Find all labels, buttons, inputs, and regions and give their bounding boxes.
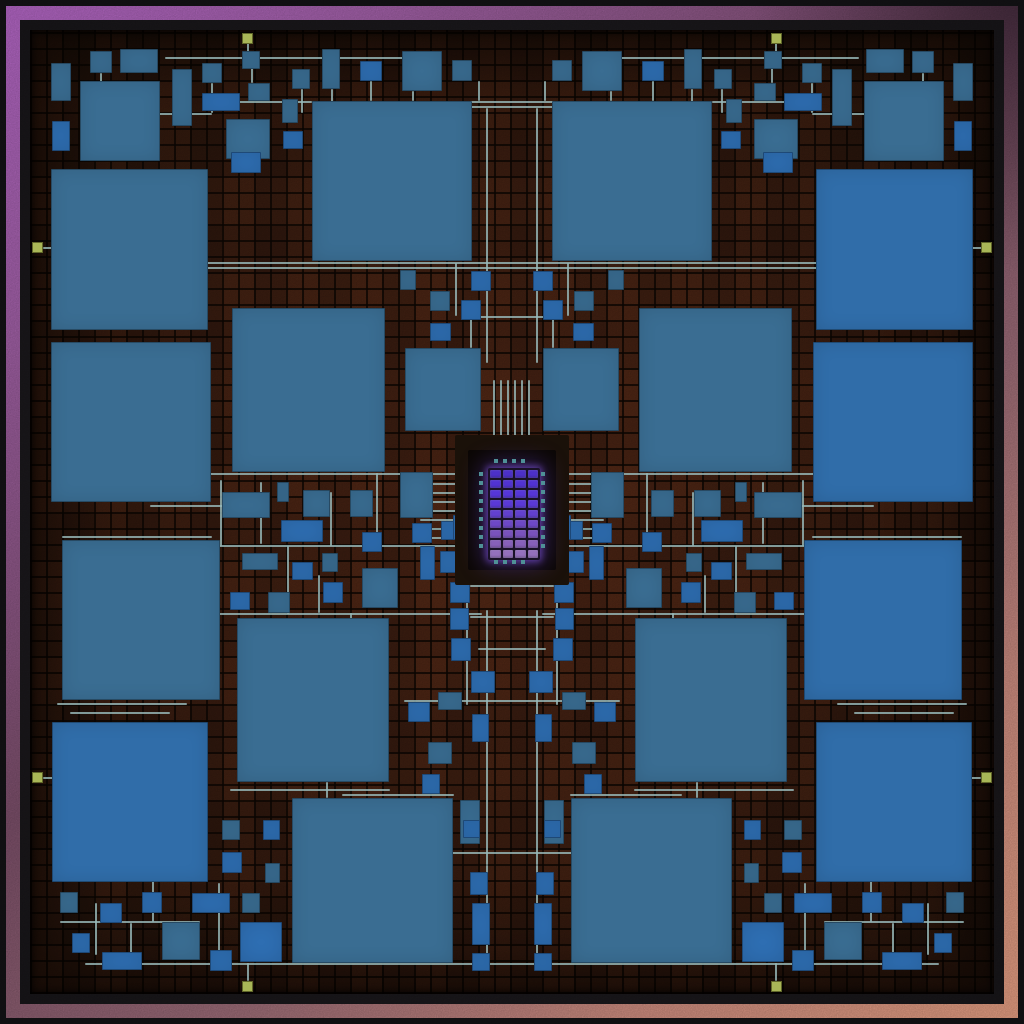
core-cell — [515, 540, 526, 548]
logic-block — [210, 950, 232, 971]
core-cell — [490, 540, 501, 548]
bond-pad — [981, 772, 992, 783]
core-cell — [503, 470, 514, 478]
trace — [542, 613, 824, 615]
logic-block — [451, 638, 471, 661]
logic-block — [248, 83, 270, 101]
logic-block — [222, 492, 270, 518]
logic-block — [934, 933, 952, 953]
core-cell — [490, 480, 501, 488]
logic-block — [764, 51, 782, 69]
logic-block — [440, 551, 456, 573]
logic-block — [642, 61, 664, 81]
logic-block — [543, 300, 563, 320]
trace — [837, 703, 967, 705]
logic-block — [450, 608, 469, 630]
core-cell — [503, 530, 514, 538]
logic-block — [744, 863, 759, 883]
bond-pad — [242, 33, 253, 44]
logic-block — [100, 903, 122, 923]
core-cell — [503, 480, 514, 488]
chip-die-artwork — [0, 0, 1024, 1024]
logic-block — [572, 742, 596, 764]
logic-block — [866, 49, 904, 73]
macro-block — [832, 69, 852, 126]
trace — [200, 613, 482, 615]
logic-block — [60, 892, 78, 913]
logic-block — [450, 582, 470, 603]
logic-block — [51, 63, 71, 101]
core-cell — [515, 550, 526, 558]
core-cell — [528, 500, 539, 508]
logic-block — [428, 742, 452, 764]
logic-block — [536, 872, 554, 895]
macro-block — [816, 722, 972, 882]
core-cell — [490, 520, 501, 528]
core-cell — [490, 490, 501, 498]
core-cell — [490, 530, 501, 538]
pin-dot — [512, 459, 516, 463]
pin-dot — [479, 490, 483, 494]
trace — [854, 712, 954, 714]
macro-block — [804, 540, 962, 700]
macro-block — [571, 798, 732, 963]
logic-block — [714, 69, 732, 89]
logic-block — [461, 300, 481, 320]
pin-dot — [541, 481, 545, 485]
pin-dot — [494, 459, 498, 463]
logic-block — [90, 51, 112, 73]
trace — [470, 106, 554, 108]
trace — [478, 81, 480, 101]
logic-block — [784, 820, 802, 840]
macro-block — [292, 798, 453, 963]
logic-block — [281, 520, 323, 542]
logic-block — [430, 323, 451, 341]
logic-block — [553, 638, 573, 661]
trace — [470, 585, 554, 587]
trace — [342, 794, 454, 796]
trace — [404, 700, 620, 702]
trace — [812, 536, 962, 538]
logic-block — [400, 270, 416, 290]
logic-block — [102, 952, 142, 970]
core-cell — [490, 550, 501, 558]
logic-block — [422, 774, 440, 794]
macro-block — [816, 169, 973, 330]
pin-dot — [494, 560, 498, 564]
core-cell — [528, 540, 539, 548]
logic-block — [744, 820, 761, 840]
logic-block — [535, 714, 552, 742]
core-cell — [503, 500, 514, 508]
logic-block — [552, 60, 572, 81]
logic-block — [277, 482, 289, 502]
logic-block — [242, 893, 260, 913]
logic-block — [953, 63, 973, 101]
pin-dot — [479, 481, 483, 485]
logic-block — [265, 863, 280, 883]
macro-block — [52, 722, 208, 882]
logic-block — [231, 152, 261, 173]
logic-block — [420, 546, 435, 580]
logic-block — [562, 692, 586, 710]
logic-block — [322, 553, 338, 572]
logic-block — [222, 852, 242, 873]
bond-pad — [242, 981, 253, 992]
logic-block — [862, 892, 882, 913]
trace — [70, 712, 170, 714]
logic-block — [701, 520, 743, 542]
core-cell — [528, 550, 539, 558]
pin-dot — [479, 508, 483, 512]
core-cell — [528, 510, 539, 518]
macro-block — [312, 101, 472, 261]
pin-dot — [503, 459, 507, 463]
logic-block — [534, 903, 552, 945]
logic-block — [686, 553, 702, 572]
logic-block — [412, 523, 432, 543]
logic-block — [902, 903, 924, 923]
pin-dot — [541, 508, 545, 512]
trace — [721, 89, 723, 113]
logic-block — [782, 852, 802, 873]
logic-block — [726, 99, 742, 123]
logic-block — [402, 51, 442, 91]
macro-block — [639, 308, 792, 472]
logic-block — [912, 51, 934, 73]
logic-block — [589, 546, 604, 580]
logic-block — [470, 872, 488, 895]
trace — [696, 782, 698, 798]
core-grid — [488, 468, 540, 560]
logic-block — [230, 592, 250, 610]
logic-block — [362, 568, 398, 608]
logic-block — [471, 271, 491, 291]
trace — [544, 81, 546, 101]
logic-block — [282, 99, 298, 123]
trace — [927, 903, 929, 955]
logic-block — [408, 702, 430, 722]
core-cell — [515, 470, 526, 478]
logic-block — [608, 270, 624, 290]
logic-block — [472, 953, 490, 971]
trace — [775, 963, 777, 981]
logic-block — [142, 892, 162, 913]
logic-block — [735, 482, 747, 502]
trace — [570, 794, 682, 796]
logic-block — [651, 490, 674, 517]
logic-block — [202, 93, 240, 111]
logic-block — [626, 568, 662, 608]
logic-block — [362, 532, 382, 552]
core-cell — [515, 480, 526, 488]
pin-dot — [521, 560, 525, 564]
logic-block — [303, 490, 330, 517]
trace — [150, 505, 230, 507]
core-cell — [490, 500, 501, 508]
logic-block — [568, 551, 584, 573]
logic-block — [292, 69, 310, 89]
logic-block — [52, 121, 70, 151]
logic-block — [240, 922, 282, 962]
logic-block — [721, 131, 741, 149]
pin-dot — [521, 459, 525, 463]
logic-block — [120, 49, 158, 73]
logic-block — [574, 291, 594, 311]
core-cell — [515, 490, 526, 498]
logic-block — [242, 51, 260, 69]
logic-block — [283, 131, 303, 149]
macro-block — [864, 81, 944, 161]
logic-block — [824, 922, 862, 960]
trace — [470, 318, 472, 348]
logic-block — [202, 63, 222, 83]
pin-dot — [479, 526, 483, 530]
logic-block — [594, 702, 616, 722]
macro-block — [405, 348, 481, 431]
macro-block — [62, 540, 220, 700]
logic-block — [472, 903, 490, 945]
core-cell — [503, 510, 514, 518]
trace — [330, 492, 332, 546]
core-cell — [515, 500, 526, 508]
macro-block — [80, 81, 160, 161]
logic-block — [694, 490, 721, 517]
logic-block — [463, 820, 480, 838]
pin-dot — [541, 526, 545, 530]
logic-block — [591, 472, 624, 518]
logic-block — [534, 953, 552, 971]
logic-block — [268, 592, 290, 613]
core-cell — [503, 490, 514, 498]
trace — [567, 263, 569, 316]
trace — [802, 480, 804, 546]
bond-pad — [32, 772, 43, 783]
core-cell — [528, 530, 539, 538]
logic-block — [684, 49, 702, 89]
trace — [794, 505, 874, 507]
logic-block — [642, 532, 662, 552]
pin-dot — [541, 499, 545, 503]
pin-dot — [541, 535, 545, 539]
trace — [652, 81, 654, 101]
core-cell — [528, 490, 539, 498]
logic-block — [746, 553, 782, 570]
logic-block — [774, 592, 794, 610]
logic-block — [323, 582, 343, 603]
core-cell — [528, 480, 539, 488]
logic-block — [452, 60, 472, 81]
logic-block — [784, 93, 822, 111]
logic-block — [681, 582, 701, 603]
logic-block — [734, 592, 756, 613]
logic-block — [954, 121, 972, 151]
trace — [610, 91, 612, 101]
trace — [95, 903, 97, 955]
logic-block — [322, 49, 340, 89]
core-cell — [503, 550, 514, 558]
core-cell — [515, 530, 526, 538]
trace — [82, 267, 942, 269]
logic-block — [263, 820, 280, 840]
core-cell — [490, 470, 501, 478]
pin-dot — [512, 560, 516, 564]
logic-block — [946, 892, 964, 913]
trace — [486, 108, 488, 363]
bond-pad — [771, 981, 782, 992]
logic-block — [242, 553, 278, 570]
logic-block — [792, 950, 814, 971]
logic-block — [764, 893, 782, 913]
macro-block — [51, 169, 208, 330]
pin-dot — [479, 472, 483, 476]
logic-block — [438, 692, 462, 710]
logic-block — [533, 271, 553, 291]
core-cell — [503, 540, 514, 548]
pin-dot — [541, 472, 545, 476]
trace — [470, 101, 554, 103]
logic-block — [754, 83, 776, 101]
trace — [326, 782, 328, 798]
macro-block — [172, 69, 192, 126]
trace — [455, 263, 457, 316]
pin-dot — [541, 544, 545, 548]
logic-block — [529, 671, 553, 693]
bond-pad — [981, 242, 992, 253]
trace — [536, 108, 538, 363]
bond-pad — [771, 33, 782, 44]
logic-block — [72, 933, 90, 953]
trace — [704, 575, 706, 613]
trace — [412, 91, 414, 101]
logic-block — [754, 492, 802, 518]
bond-pad — [32, 242, 43, 253]
macro-block — [232, 308, 385, 472]
pin-dot — [503, 560, 507, 564]
logic-block — [471, 671, 495, 693]
logic-block — [554, 582, 574, 603]
logic-block — [360, 61, 382, 81]
pin-dot — [541, 490, 545, 494]
core-cell — [490, 510, 501, 518]
core-cell — [503, 520, 514, 528]
macro-block — [635, 618, 787, 782]
pin-dot — [479, 517, 483, 521]
trace — [318, 575, 320, 613]
logic-block — [573, 323, 594, 341]
pin-dot — [541, 517, 545, 521]
pin-dot — [479, 535, 483, 539]
trace — [552, 318, 554, 348]
core-cell — [515, 510, 526, 518]
macro-block — [543, 348, 619, 431]
trace — [230, 789, 390, 791]
trace — [57, 703, 187, 705]
trace — [62, 536, 212, 538]
logic-block — [162, 922, 200, 960]
trace — [301, 89, 303, 113]
logic-block — [544, 820, 561, 838]
logic-block — [582, 51, 622, 91]
logic-block — [472, 714, 489, 742]
trace — [568, 545, 812, 547]
logic-block — [763, 152, 793, 173]
logic-block — [192, 893, 230, 913]
logic-block — [584, 774, 602, 794]
pin-dot — [479, 544, 483, 548]
trace — [470, 616, 554, 618]
logic-block — [711, 562, 732, 580]
logic-block — [802, 63, 822, 83]
trace — [247, 963, 249, 981]
core-cell — [528, 470, 539, 478]
pin-dot — [479, 499, 483, 503]
logic-block — [400, 472, 433, 518]
logic-block — [794, 893, 832, 913]
macro-block — [237, 618, 389, 782]
trace — [634, 789, 794, 791]
core-cell — [515, 520, 526, 528]
macro-block — [552, 101, 712, 261]
core-cell — [528, 520, 539, 528]
logic-block — [350, 490, 373, 517]
logic-block — [222, 820, 240, 840]
trace — [619, 57, 859, 59]
logic-block — [555, 608, 574, 630]
macro-block — [813, 342, 973, 502]
trace — [165, 57, 405, 59]
logic-block — [592, 523, 612, 543]
logic-block — [430, 291, 450, 311]
logic-block — [882, 952, 922, 970]
trace — [370, 81, 372, 101]
logic-block — [742, 922, 784, 962]
logic-block — [292, 562, 313, 580]
macro-block — [51, 342, 211, 502]
